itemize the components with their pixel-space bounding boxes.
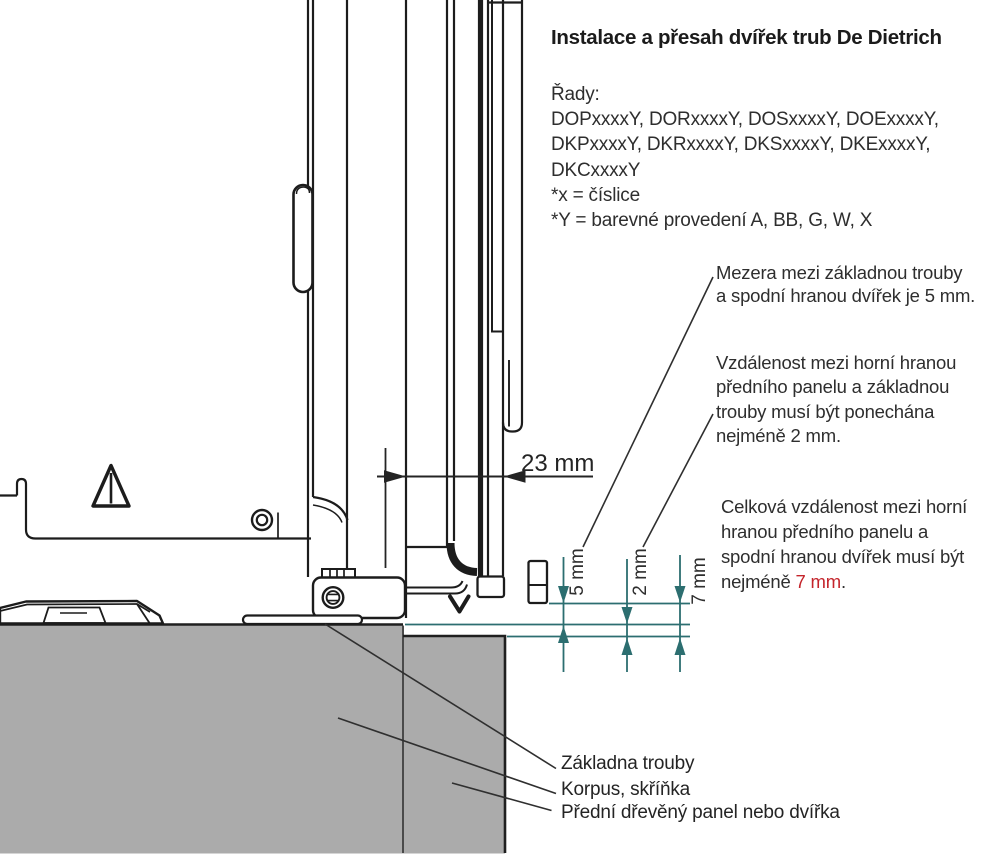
annotation-gap-total: Celková vzdálenost mezi horní hranou pře… [721, 494, 967, 594]
door-assembly [406, 0, 547, 612]
part-label-cabinet: Korpus, skříňka [561, 779, 690, 801]
screw-upper-icon [252, 510, 278, 538]
part-label-oven-base: Základna trouby [561, 753, 694, 775]
series-heading: Řady: [551, 82, 939, 107]
part-label-front-panel: Přední dřevěný panel nebo dvířka [561, 802, 840, 824]
cabinet-blocks [0, 625, 505, 854]
arrow-down-icon [622, 607, 633, 624]
series-line: DKPxxxxY, DKRxxxxY, DKSxxxxY, DKExxxxY, [551, 132, 939, 157]
page-title: Instalace a přesah dvířek trub De Dietri… [551, 26, 942, 50]
series-line: *Y = barevné provedení A, BB, G, W, X [551, 208, 939, 233]
door-bottom-pointer [450, 597, 469, 612]
screw-lower-icon [323, 587, 344, 608]
cabinet-block [0, 625, 403, 854]
dimension-label-2mm: 2 mm [630, 548, 652, 596]
arrow-down-icon [675, 586, 686, 603]
dimension-label-5mm: 5 mm [567, 548, 589, 596]
arrow-up-icon [558, 626, 569, 643]
highlighted-value: 7 mm [796, 571, 841, 592]
warning-triangle-icon [93, 466, 129, 507]
teal-dimension-arrows [558, 586, 686, 655]
dimension-label-23mm: 23 mm [521, 450, 594, 478]
arrow-right-icon [384, 470, 406, 482]
series-line: *x = číslice [551, 183, 939, 208]
door-handle [294, 185, 313, 292]
annotation-last-line: nejméně 7 mm. [721, 569, 967, 594]
oven-foot [0, 601, 163, 624]
series-line: DKCxxxxY [551, 158, 939, 183]
oven-installation-diagram: Instalace a přesah dvířek trub De Dietri… [0, 0, 1000, 856]
front-panel-block [403, 636, 505, 854]
series-block: Řady: DOPxxxxY, DORxxxxY, DOSxxxxY, DOEx… [551, 82, 939, 233]
arrow-up-icon [675, 638, 686, 655]
series-line: DOPxxxxY, DORxxxxY, DOSxxxxY, DOExxxxY, [551, 107, 939, 132]
base-plate [243, 616, 362, 625]
annotation-gap-panel-base: Vzdálenost mezi horní hranou předního pa… [716, 351, 956, 448]
dimension-label-7mm: 7 mm [689, 557, 711, 605]
oven-cross-section [0, 0, 547, 624]
arrow-up-icon [622, 638, 633, 655]
annotation-gap-door-base: Mezera mezi základnou trouby a spodní hr… [716, 261, 975, 307]
